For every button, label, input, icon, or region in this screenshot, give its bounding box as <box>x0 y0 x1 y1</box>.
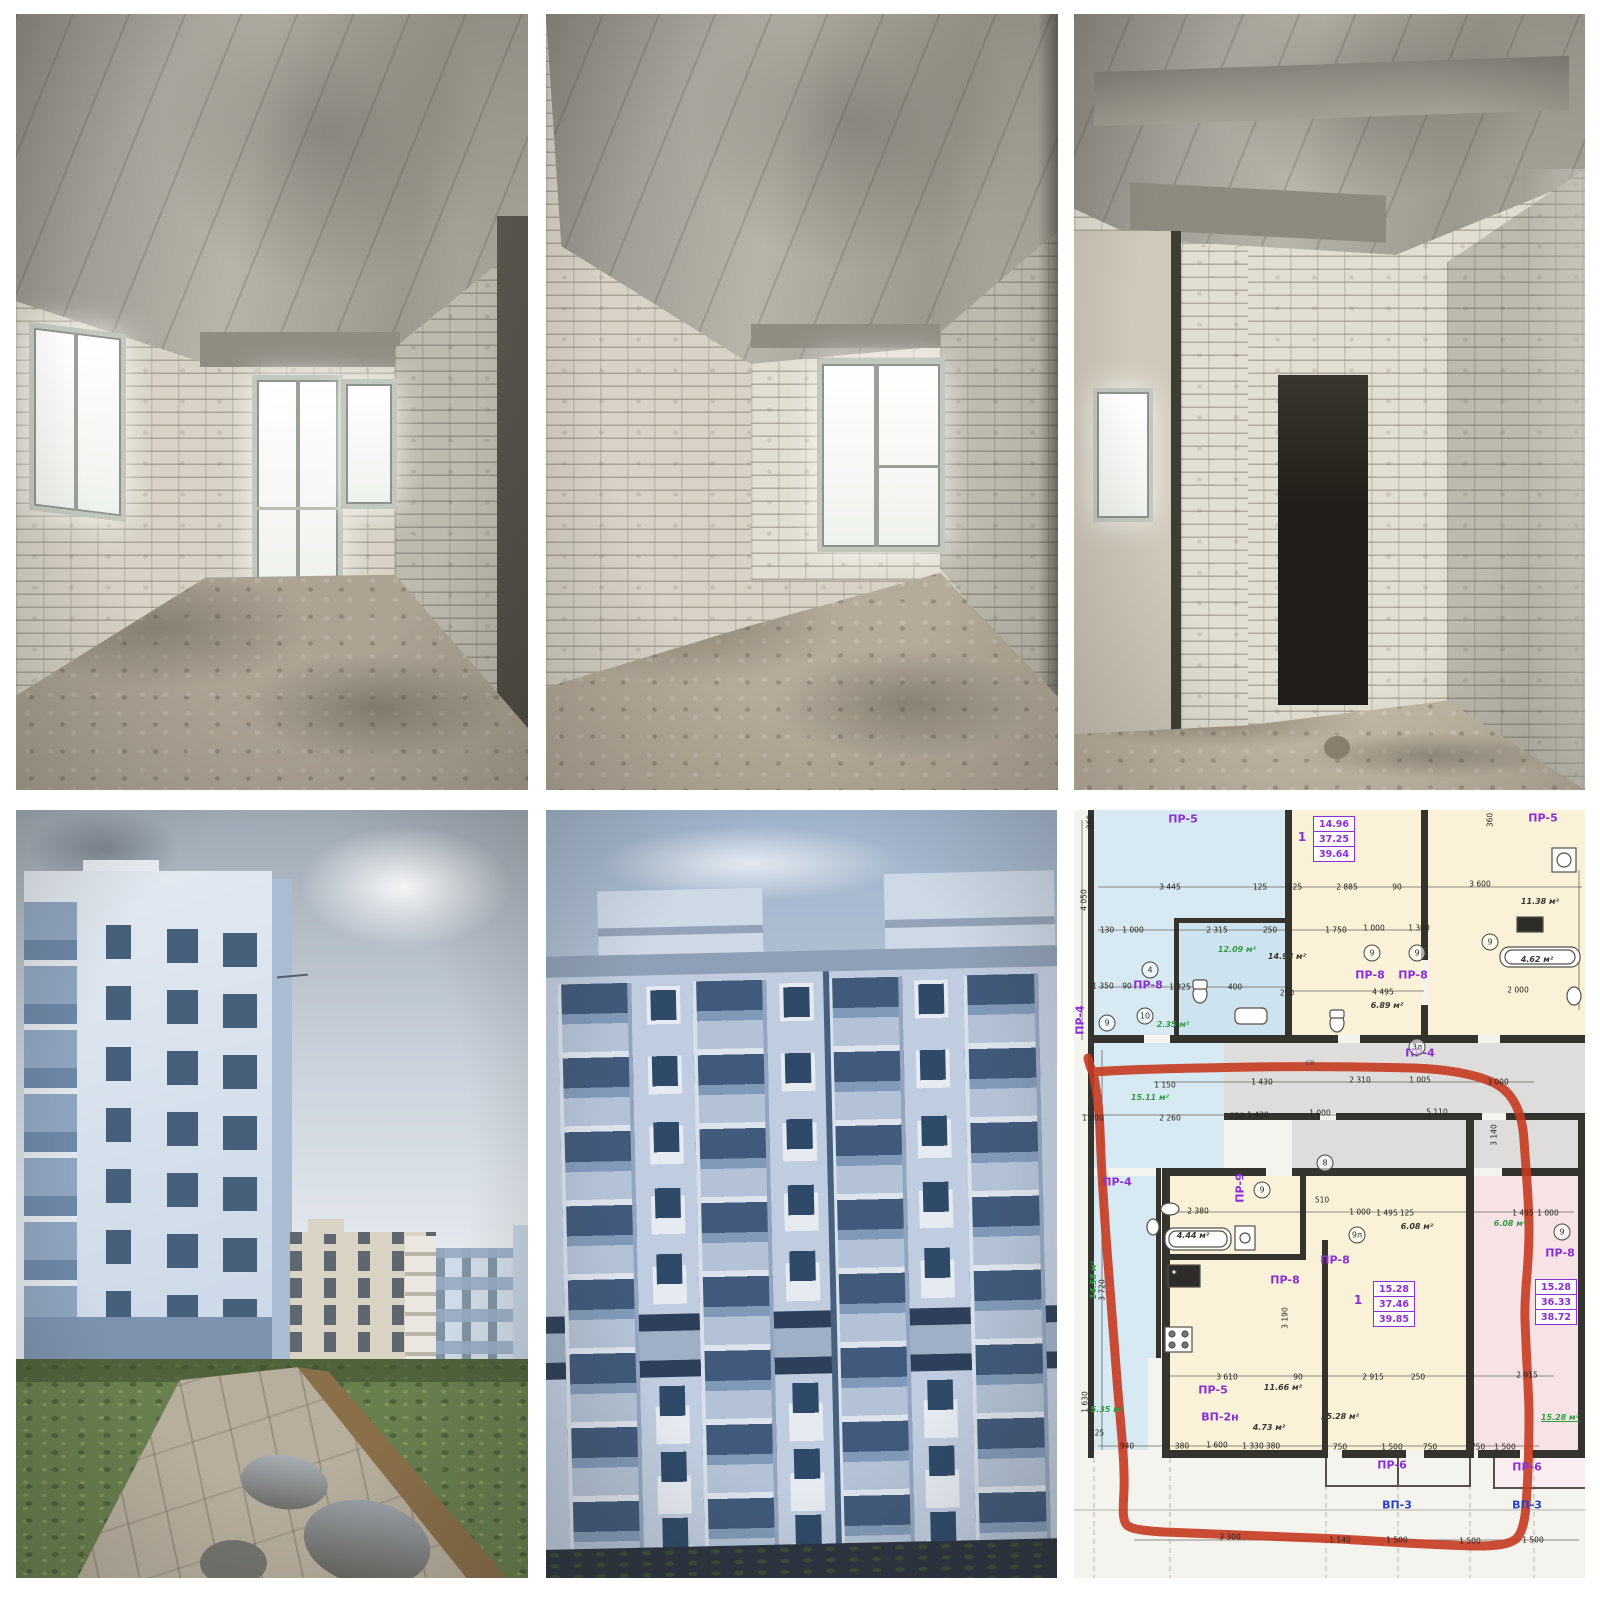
plan-label-dim: 750 <box>1333 1443 1347 1451</box>
plan-label-dim: 2 260 <box>1159 1114 1180 1122</box>
plan-label-circ: 8 <box>1317 1155 1334 1172</box>
plan-label-dim: 125 <box>1090 1429 1104 1437</box>
plan-label-circ: 9л <box>1349 1227 1366 1244</box>
plan-label-dim: 3 445 <box>1159 883 1180 891</box>
plan-label-dim: 125 <box>1400 1209 1414 1217</box>
plan-label-dim: 1 500 <box>1494 1443 1515 1451</box>
plan-label-dim: 1 000 <box>1082 1114 1103 1122</box>
plan-label-green: 12.09 м² <box>1218 946 1256 954</box>
plan-label-dim: 1 420 <box>1247 1111 1268 1119</box>
facade-vignette <box>546 810 1057 1578</box>
plan-label-dim: 3 600 <box>1469 880 1490 888</box>
room1-vignette <box>16 14 528 790</box>
plan-label-blue: ВП-3 <box>1382 1500 1412 1511</box>
plan-label-dim: 3 300 <box>1219 1533 1240 1541</box>
photo-floor-plan[interactable]: ПР-5ПР-5ПР-8ПР-8ПР-8ПР-4ПР-4ПР-9ПР-4ПР-8… <box>1074 810 1585 1578</box>
plan-label-dim: 90 <box>1122 982 1132 990</box>
plan-label-dim: 130 <box>1100 926 1114 934</box>
plan-label-dim: 1 000 <box>1122 926 1143 934</box>
plan-label-room: ПР-8 <box>1270 1275 1300 1286</box>
plan-label-dim: 1 330 <box>1242 1442 1263 1450</box>
plan-label-dim: 250 <box>1263 926 1277 934</box>
plan-label-dim: 1 000 <box>1309 1109 1330 1117</box>
plan-label-area: 4.44 м² <box>1177 1232 1210 1240</box>
plan-label-dim: 750 <box>1471 1443 1485 1451</box>
plan-label-dim: 1 500 <box>1522 1536 1543 1544</box>
plan-label-area: 11.66 м² <box>1264 1384 1302 1392</box>
plan-label-circ: 10 <box>1137 1008 1154 1025</box>
plan-label-greenu: 15.28 м² <box>1541 1414 1579 1422</box>
plan-label-one: 1 <box>1354 1294 1362 1306</box>
plan-label-room: ПР-5 <box>1198 1385 1228 1396</box>
plan-label-dim: 1 630 <box>1081 1391 1089 1412</box>
apartment-area-box: 15.2837.4639.85 <box>1373 1281 1415 1327</box>
plan-label-room: ПР-8 <box>1355 970 1385 981</box>
photo-collage: ПР-5ПР-5ПР-8ПР-8ПР-8ПР-4ПР-4ПР-9ПР-4ПР-8… <box>0 0 1600 1600</box>
plan-label-dim: 1 000 <box>1363 924 1384 932</box>
apartment-area-box: 15.2836.3338.72 <box>1535 1279 1577 1325</box>
plan-label-dim: 360 <box>1486 813 1494 827</box>
plan-label-dim: 2 380 <box>1187 1207 1208 1215</box>
plan-label-dim: 1 500 <box>1459 1537 1480 1545</box>
plan-label-area: 4.73 м² <box>1253 1424 1286 1432</box>
photo-interior-room-1[interactable] <box>16 14 528 790</box>
plan-label-green: 2.35 м² <box>1157 1021 1190 1029</box>
plan-label-dim: 400 <box>1228 983 1242 991</box>
plan-label-circ: 9 <box>1554 1224 1571 1241</box>
plan-label-dim: 1 000 <box>1537 1209 1558 1217</box>
plan-label-dim: 90 <box>1293 1373 1303 1381</box>
plan-label-room: ПР-8 <box>1398 970 1428 981</box>
plan-label-green: 15.11 м² <box>1131 1094 1169 1102</box>
plan-label-area: 15.28 м² <box>1321 1413 1359 1421</box>
plan-label-room: ПР-5 <box>1528 813 1558 824</box>
plan-label-dim: 2 915 <box>1516 1371 1537 1379</box>
plan-label-dim: 1 000 <box>1349 1208 1370 1216</box>
plan-label-green: 6.08 м² <box>1494 1220 1527 1228</box>
plan-label-room: ПР-8 <box>1545 1248 1575 1259</box>
plan-label-green: 5.35 м² <box>1091 1406 1124 1414</box>
photo-facade[interactable] <box>546 810 1057 1578</box>
plan-label-circ: 3л <box>1409 1039 1426 1056</box>
plan-label-dim: 2 000 <box>1507 986 1528 994</box>
plan-label-dim: 125 <box>1288 883 1302 891</box>
plan-label-blue: ВП-3 <box>1512 1500 1542 1511</box>
plan-label-dim: 1 325 <box>1169 983 1190 991</box>
plan-label-dim: 5 110 <box>1426 1108 1447 1116</box>
corridor-vignette <box>1074 14 1585 790</box>
plan-label-circ: 9 <box>1364 945 1381 962</box>
plan-label-dim: 250 <box>1411 1373 1425 1381</box>
plan-label-room: ПР-8 <box>1320 1255 1350 1266</box>
plan-label-dim: 510 <box>1315 1196 1329 1204</box>
plan-label-dim: 380 <box>1266 1442 1280 1450</box>
plan-label-room: ПР-9 <box>1235 1173 1246 1203</box>
plan-label-one: 1 <box>1298 831 1306 843</box>
plan-label-layer: ПР-5ПР-5ПР-8ПР-8ПР-8ПР-4ПР-4ПР-9ПР-4ПР-8… <box>1074 810 1585 1578</box>
plan-label-dim: 1 495 <box>1376 1209 1397 1217</box>
plan-label-dim: 2 915 <box>1362 1373 1383 1381</box>
apartment-area-box: 14.9637.2539.64 <box>1313 816 1355 862</box>
plan-label-dim: 1 430 <box>1251 1078 1272 1086</box>
plan-label-dim: 3 000 <box>1487 1078 1508 1086</box>
plan-label-dim: 380 <box>1175 1442 1189 1450</box>
plan-label-tiny: СВ <box>1306 1060 1315 1067</box>
plan-label-circ: 9 <box>1409 945 1426 962</box>
plan-label-dim: 1 495 <box>1512 1209 1533 1217</box>
plan-label-dim: 1 600 <box>1206 1441 1227 1449</box>
plan-label-room: ПР-6 <box>1512 1462 1542 1473</box>
plan-label-area: 11.38 м² <box>1521 898 1559 906</box>
plan-label-dim: 1 005 <box>1409 1076 1430 1084</box>
plan-label-area: 14.98 м² <box>1268 953 1306 961</box>
plan-label-dim: 940 <box>1120 1442 1134 1450</box>
plan-label-room: ПР-4 <box>1102 1177 1132 1188</box>
plan-label-dim: 4 050 <box>1080 889 1088 910</box>
plan-label-room: ПР-6 <box>1377 1460 1407 1471</box>
plan-label-circ: 9 <box>1254 1182 1271 1199</box>
plan-label-dim: 2 315 <box>1206 926 1227 934</box>
plan-label-room: ПР-5 <box>1168 814 1198 825</box>
plan-label-dim: 1 150 <box>1154 1081 1175 1089</box>
plan-label-dim: 1 750 <box>1325 926 1346 934</box>
plan-label-circ: 9 <box>1482 934 1499 951</box>
plan-label-dim: 3 140 <box>1490 1124 1498 1145</box>
plan-label-dim: 90 <box>1392 883 1402 891</box>
yard-vignette <box>16 810 528 1578</box>
plan-label-circ: 4 <box>1142 962 1159 979</box>
room2-vignette <box>546 14 1058 790</box>
plan-label-dim: 3 190 <box>1281 1307 1289 1328</box>
plan-label-dim: 1 500 <box>1381 1443 1402 1451</box>
plan-label-dim: 4 495 <box>1372 988 1393 996</box>
plan-label-dim: 2 885 <box>1336 883 1357 891</box>
plan-label-dim: 1 350 <box>1092 982 1113 990</box>
plan-label-dim: 125 <box>1253 883 1267 891</box>
photo-interior-corridor[interactable] <box>1074 14 1585 790</box>
plan-label-area: 4.62 м² <box>1521 956 1554 964</box>
plan-label-dim: 2 310 <box>1349 1076 1370 1084</box>
plan-label-area: 6.89 м² <box>1371 1002 1404 1010</box>
plan-label-area: 6.08 м² <box>1401 1223 1434 1231</box>
plan-label-dim: 250 <box>1230 1112 1244 1120</box>
plan-label-room: ВП-2н <box>1201 1412 1238 1423</box>
floor-plan: ПР-5ПР-5ПР-8ПР-8ПР-8ПР-4ПР-4ПР-9ПР-4ПР-8… <box>1074 810 1585 1578</box>
plan-label-dim: 750 <box>1423 1443 1437 1451</box>
plan-label-room: ПР-8 <box>1133 980 1163 991</box>
plan-label-dim: 1 500 <box>1386 1536 1407 1544</box>
plan-label-dim: 3 610 <box>1216 1373 1237 1381</box>
plan-label-circ: 9 <box>1099 1015 1116 1032</box>
plan-label-dim: 1 300 <box>1408 924 1429 932</box>
plan-label-dim: 360 <box>1086 815 1094 829</box>
plan-label-dim: 3 720 <box>1098 1279 1106 1300</box>
photo-interior-room-2[interactable] <box>546 14 1058 790</box>
plan-label-dim: 1 140 <box>1329 1536 1350 1544</box>
photo-buildings-yard[interactable] <box>16 810 528 1578</box>
plan-label-room: ПР-4 <box>1075 1005 1086 1035</box>
plan-label-dim: 250 <box>1280 989 1294 997</box>
